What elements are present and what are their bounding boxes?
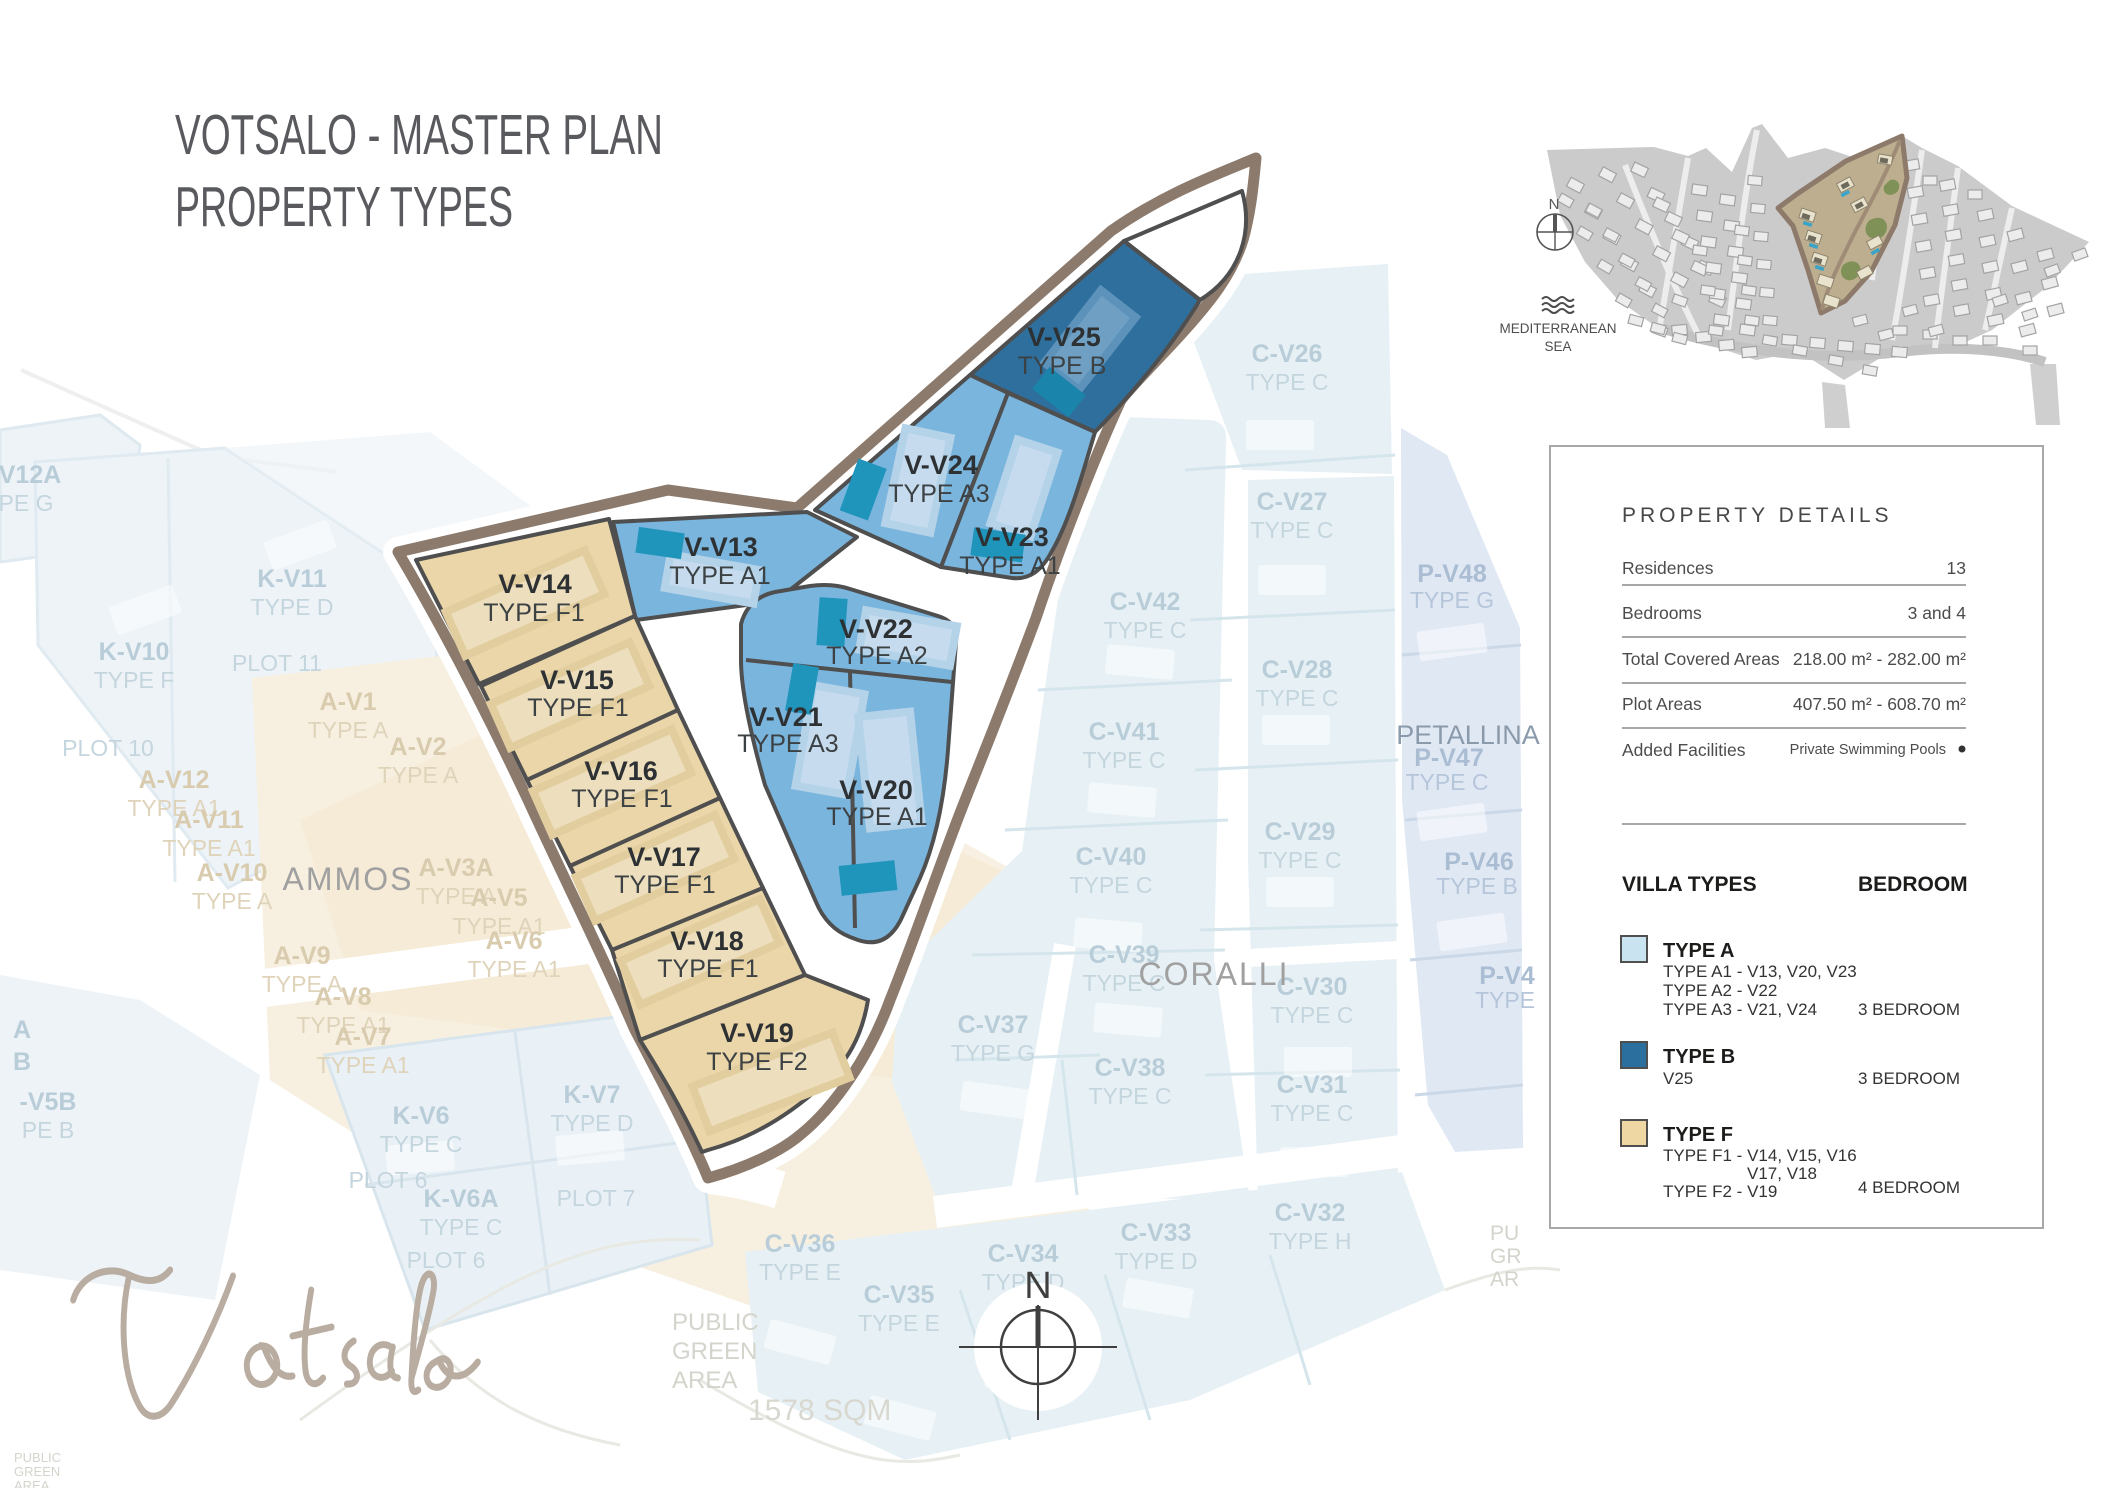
svg-text:N: N [1549,196,1560,213]
svg-text:TYPE A1: TYPE A1 [162,835,255,861]
svg-text:TYPE C: TYPE C [1245,369,1328,395]
svg-text:AREA: AREA [672,1367,737,1394]
svg-text:A-V5: A-V5 [471,884,528,912]
svg-text:3 and 4: 3 and 4 [1908,603,1967,623]
svg-text:A-V7: A-V7 [335,1023,392,1051]
svg-text:PROPERTY DETAILS: PROPERTY DETAILS [1622,504,1893,527]
svg-text:TYPE C: TYPE C [1103,617,1186,643]
svg-text:PROPERTY TYPES: PROPERTY TYPES [175,175,513,239]
svg-text:TYPE B: TYPE B [1436,873,1518,899]
svg-text:C-V33: C-V33 [1121,1219,1192,1247]
svg-text:TYPE G: TYPE G [1410,587,1494,613]
svg-text:TYPE: TYPE [1475,987,1535,1013]
svg-text:AR: AR [1490,1268,1519,1291]
svg-text:PLOT 6: PLOT 6 [349,1167,428,1193]
svg-text:TYPE C: TYPE C [1270,1100,1353,1126]
svg-text:TYPE A1: TYPE A1 [316,1052,409,1078]
svg-text:TYPE F1 - V14, V15, V16: TYPE F1 - V14, V15, V16 [1663,1146,1857,1165]
svg-text:P-V48: P-V48 [1417,560,1487,588]
svg-text:PLOT 7: PLOT 7 [557,1185,636,1211]
svg-text:TYPE A3: TYPE A3 [737,730,838,758]
svg-text:V-V20: V-V20 [839,775,913,805]
svg-text:Private Swimming Pools: Private Swimming Pools [1790,742,1946,758]
svg-text:3 BEDROOM: 3 BEDROOM [1858,1069,1960,1088]
svg-text:TYPE A: TYPE A [308,717,389,743]
svg-text:TYPE D: TYPE D [550,1110,633,1136]
svg-text:PUBLIC: PUBLIC [672,1309,759,1336]
svg-text:TYPE F1: TYPE F1 [527,694,628,722]
svg-text:V25: V25 [1663,1069,1693,1088]
svg-text:A-V2: A-V2 [390,733,447,761]
svg-text:P-V46: P-V46 [1444,848,1513,876]
svg-text:TYPE C: TYPE C [1270,1002,1353,1028]
svg-text:Added Facilities: Added Facilities [1622,740,1746,760]
svg-text:C-V40: C-V40 [1076,843,1147,871]
svg-text:K-V7: K-V7 [564,1081,621,1109]
svg-text:V-V15: V-V15 [540,665,614,695]
svg-text:TYPE C: TYPE C [1255,685,1338,711]
svg-text:K-V6: K-V6 [393,1102,450,1130]
svg-text:GR: GR [1490,1245,1522,1268]
svg-text:V17, V18: V17, V18 [1747,1164,1817,1183]
svg-text:TYPE A: TYPE A [192,888,273,914]
svg-text:A: A [13,1016,31,1044]
svg-text:A-V3A: A-V3A [418,854,493,882]
svg-text:TYPE C: TYPE C [1250,517,1333,543]
svg-text:TYPE F2: TYPE F2 [706,1048,807,1076]
svg-text:TYPE C: TYPE C [379,1131,462,1157]
svg-text:V-V16: V-V16 [584,756,658,786]
svg-text:TYPE A2: TYPE A2 [826,642,927,670]
svg-text:K-V10: K-V10 [99,638,170,666]
svg-text:TYPE C: TYPE C [419,1214,502,1240]
svg-text:PLOT 11: PLOT 11 [232,650,322,676]
svg-text:VOTSALO - MASTER PLAN: VOTSALO - MASTER PLAN [175,103,663,167]
svg-text:3 BEDROOM: 3 BEDROOM [1858,1000,1960,1019]
svg-text:C-V26: C-V26 [1252,340,1323,368]
svg-text:218.00 m² - 282.00 m²: 218.00 m² - 282.00 m² [1793,649,1966,669]
svg-text:BEDROOM: BEDROOM [1858,873,1968,896]
svg-text:Plot Areas: Plot Areas [1622,694,1702,714]
svg-text:407.50 m² - 608.70 m²: 407.50 m² - 608.70 m² [1793,694,1966,714]
svg-text:A-V6: A-V6 [486,927,543,955]
svg-text:V-V19: V-V19 [720,1018,794,1048]
svg-text:PLOT 10: PLOT 10 [62,735,154,761]
svg-text:SEA: SEA [1544,339,1571,354]
svg-text:P-V47: P-V47 [1414,744,1483,772]
svg-text:MEDITERRANEAN: MEDITERRANEAN [1499,321,1616,336]
svg-text:TYPE D: TYPE D [250,594,333,620]
svg-text:TYPE C: TYPE C [1069,872,1152,898]
svg-text:C-V41: C-V41 [1089,718,1160,746]
svg-text:V-V22: V-V22 [839,614,913,644]
svg-text:TYPE H: TYPE H [1268,1228,1351,1254]
svg-text:V12A: V12A [0,461,61,489]
svg-text:C-V42: C-V42 [1110,588,1181,616]
svg-text:V-V21: V-V21 [749,702,823,732]
svg-text:TYPE E: TYPE E [858,1310,940,1336]
svg-text:V-V24: V-V24 [904,450,978,480]
svg-text:PU: PU [1490,1222,1519,1245]
svg-text:CORALLI: CORALLI [1139,956,1290,992]
svg-text:4 BEDROOM: 4 BEDROOM [1858,1178,1960,1197]
svg-text:-V5B: -V5B [20,1088,77,1116]
svg-text:TYPE A: TYPE A [1663,940,1735,962]
svg-text:C-V36: C-V36 [765,1230,836,1258]
svg-text:PE G: PE G [0,490,53,516]
svg-text:P-V4: P-V4 [1479,962,1535,990]
svg-text:A-V1: A-V1 [320,688,377,716]
svg-text:TYPE A3 - V21, V24: TYPE A3 - V21, V24 [1663,1000,1817,1019]
svg-text:C-V34: C-V34 [988,1240,1059,1268]
svg-text:C-V27: C-V27 [1257,488,1328,516]
svg-text:PUBLIC: PUBLIC [14,1450,61,1465]
svg-text:C-V37: C-V37 [958,1011,1029,1039]
svg-text:TYPE F1: TYPE F1 [571,785,672,813]
svg-text:GREEN: GREEN [672,1338,757,1365]
svg-text:TYPE B: TYPE B [1663,1046,1735,1068]
svg-text:TYPE C: TYPE C [1405,769,1488,795]
svg-text:PLOT 6: PLOT 6 [407,1247,486,1273]
svg-text:TYPE C: TYPE C [1258,847,1341,873]
svg-text:C-V32: C-V32 [1275,1199,1346,1227]
svg-text:A-V12: A-V12 [139,766,210,794]
svg-text:C-V31: C-V31 [1277,1071,1348,1099]
svg-text:TYPE A1: TYPE A1 [959,552,1060,580]
svg-text:13: 13 [1947,558,1966,578]
svg-text:N: N [1024,1265,1051,1307]
svg-text:K-V11: K-V11 [257,565,327,593]
svg-text:TYPE F1: TYPE F1 [657,955,758,983]
svg-text:TYPE G: TYPE G [951,1040,1035,1066]
svg-text:TYPE F1: TYPE F1 [483,599,584,627]
svg-text:AREA: AREA [14,1478,50,1488]
svg-text:TYPE F2 - V19: TYPE F2 - V19 [1663,1182,1777,1201]
svg-text:GREEN: GREEN [14,1464,60,1479]
svg-text:PE B: PE B [22,1117,74,1143]
svg-text:A-V9: A-V9 [274,942,331,970]
svg-text:AMMOS: AMMOS [283,861,414,897]
svg-text:TYPE A3: TYPE A3 [888,480,989,508]
svg-text:TYPE F1: TYPE F1 [614,871,715,899]
svg-text:V-V25: V-V25 [1027,322,1101,352]
svg-text:TYPE A1: TYPE A1 [826,803,927,831]
svg-text:V-V18: V-V18 [670,926,744,956]
svg-text:A-V8: A-V8 [315,983,372,1011]
svg-text:TYPE A2 - V22: TYPE A2 - V22 [1663,981,1777,1000]
svg-text:Residences: Residences [1622,558,1714,578]
svg-text:V-V23: V-V23 [975,522,1049,552]
svg-text:VILLA TYPES: VILLA TYPES [1622,873,1757,896]
svg-text:V-V13: V-V13 [684,532,758,562]
svg-text:B: B [13,1048,31,1076]
svg-text:TYPE E: TYPE E [759,1259,841,1285]
svg-text:TYPE F: TYPE F [1663,1124,1733,1146]
svg-text:TYPE C: TYPE C [1082,747,1165,773]
svg-text:TYPE F: TYPE F [94,667,175,693]
svg-text:TYPE A1 - V13, V20, V23: TYPE A1 - V13, V20, V23 [1663,962,1857,981]
svg-text:C-V35: C-V35 [864,1281,935,1309]
svg-text:TYPE A: TYPE A [378,762,459,788]
svg-text:TYPE A1: TYPE A1 [467,956,560,982]
svg-text:TYPE C: TYPE C [1088,1083,1171,1109]
svg-text:Total Covered Areas: Total Covered Areas [1622,649,1780,669]
svg-text:C-V29: C-V29 [1265,818,1336,846]
svg-text:A-V11: A-V11 [174,806,244,834]
svg-text:TYPE B: TYPE B [1018,352,1107,380]
svg-text:1578 SQM: 1578 SQM [748,1394,891,1427]
svg-text:V-V17: V-V17 [627,842,701,872]
svg-text:TYPE D: TYPE D [1114,1248,1197,1274]
svg-text:Bedrooms: Bedrooms [1622,603,1702,623]
svg-text:C-V38: C-V38 [1095,1054,1166,1082]
svg-text:C-V28: C-V28 [1262,656,1333,684]
svg-text:TYPE A1: TYPE A1 [669,562,770,590]
svg-text:V-V14: V-V14 [498,569,572,599]
svg-text:A-V10: A-V10 [197,859,268,887]
svg-text:K-V6A: K-V6A [423,1185,498,1213]
